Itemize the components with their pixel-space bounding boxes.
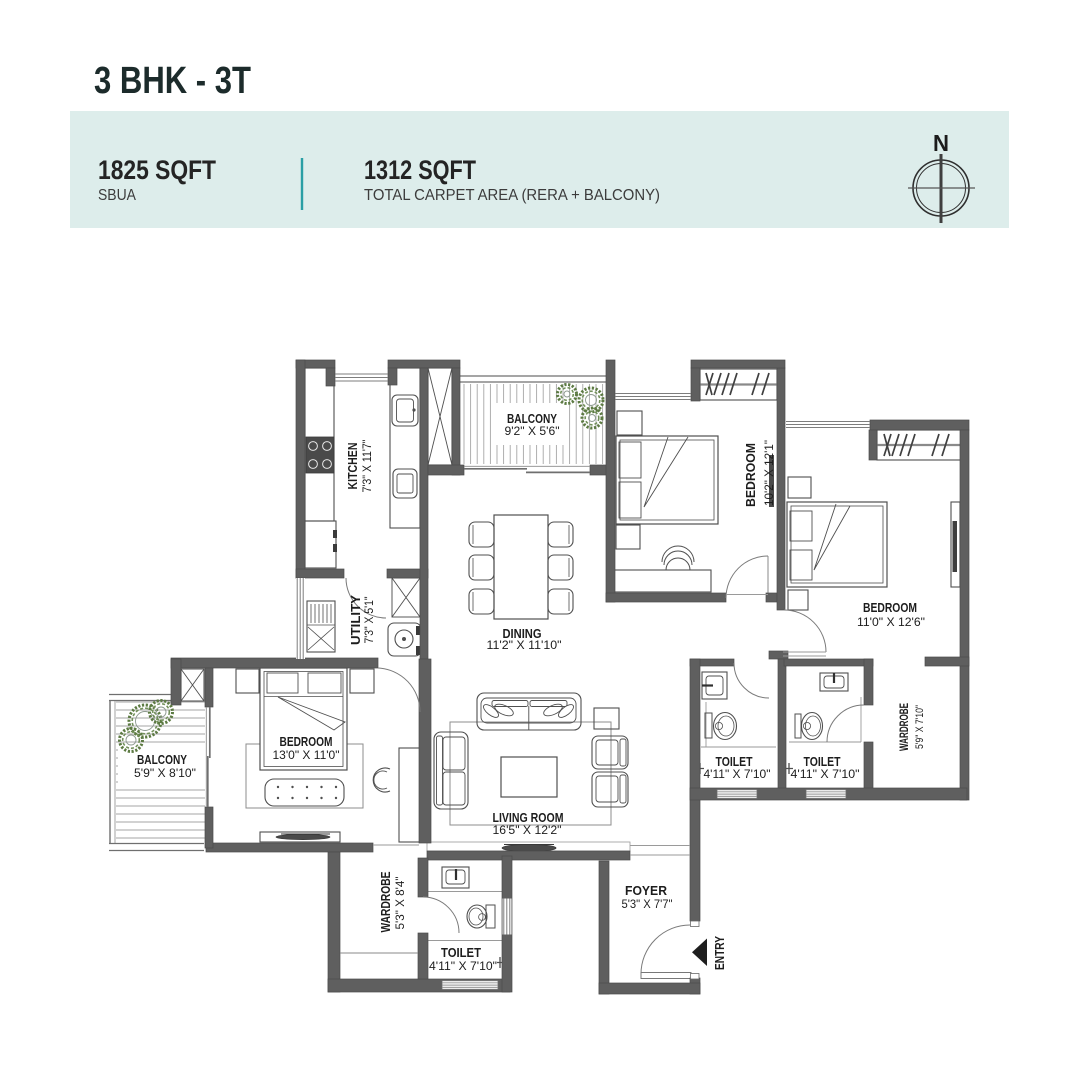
svg-text:11'0" X 12'6": 11'0" X 12'6": [857, 615, 925, 629]
svg-text:7'3" X 11'7": 7'3" X 11'7": [360, 440, 374, 493]
svg-text:N: N: [933, 130, 949, 156]
svg-text:3 BHK - 3T: 3 BHK - 3T: [94, 60, 251, 102]
svg-text:10'2" X 12'1": 10'2" X 12'1": [762, 440, 776, 506]
svg-text:7'3" X 5'1": 7'3" X 5'1": [362, 597, 376, 644]
svg-text:1825 SQFT: 1825 SQFT: [98, 155, 216, 185]
svg-text:4'11" X 7'10": 4'11" X 7'10": [429, 959, 497, 973]
svg-text:9'2" X 5'6": 9'2" X 5'6": [505, 424, 560, 438]
svg-text:TOILET: TOILET: [441, 946, 481, 960]
svg-text:4'11" X 7'10": 4'11" X 7'10": [704, 767, 771, 781]
svg-text:5'9" X 8'10": 5'9" X 8'10": [134, 766, 196, 780]
svg-text:1312 SQFT: 1312 SQFT: [364, 155, 476, 185]
svg-text:11'2" X 11'10": 11'2" X 11'10": [487, 638, 562, 652]
svg-text:BALCONY: BALCONY: [137, 753, 188, 767]
svg-text:TOTAL CARPET AREA (RERA + BALC: TOTAL CARPET AREA (RERA + BALCONY): [364, 187, 660, 204]
svg-text:UTILITY: UTILITY: [349, 594, 363, 645]
svg-text:SBUA: SBUA: [98, 187, 136, 204]
svg-text:5'3" X 8'4": 5'3" X 8'4": [393, 877, 407, 930]
svg-text:BEDROOM: BEDROOM: [863, 601, 917, 615]
svg-text:FOYER: FOYER: [625, 884, 667, 898]
svg-text:5'3" X 7'7": 5'3" X 7'7": [622, 897, 673, 911]
svg-text:KITCHEN: KITCHEN: [346, 443, 360, 490]
svg-text:WARDROBE: WARDROBE: [379, 872, 393, 933]
svg-text:5'9" X 7'10": 5'9" X 7'10": [914, 705, 926, 749]
svg-text:ENTRY: ENTRY: [712, 936, 727, 970]
svg-text:4'11" X 7'10": 4'11" X 7'10": [791, 767, 860, 781]
svg-text:BEDROOM: BEDROOM: [280, 735, 333, 749]
svg-text:WARDROBE: WARDROBE: [899, 703, 911, 751]
svg-text:13'0" X 11'0": 13'0" X 11'0": [273, 748, 340, 762]
svg-text:16'5" X 12'2": 16'5" X 12'2": [493, 823, 562, 837]
svg-text:BEDROOM: BEDROOM: [744, 443, 758, 507]
